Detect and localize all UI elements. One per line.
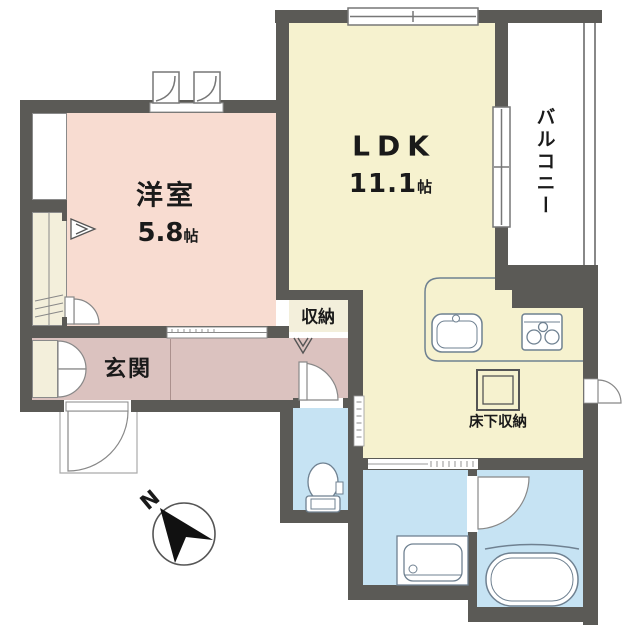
room-bathroom — [477, 470, 583, 607]
wall-balcony-lower — [495, 227, 508, 265]
wall-bath-divider — [468, 470, 477, 607]
wall-closet-stub — [32, 200, 67, 212]
label-ldk-size: 11.1帖 — [349, 169, 433, 199]
closet — [32, 212, 67, 326]
wall-washroom-bottom — [348, 585, 468, 600]
label-floor-storage: 床下収納 — [469, 411, 527, 432]
wall-ldk-west — [276, 10, 289, 296]
wall-western-top — [20, 100, 276, 113]
wall-western-south — [20, 326, 289, 338]
room-entrance-hall — [32, 338, 348, 400]
ldk-size-unit: 帖 — [417, 178, 433, 196]
label-entrance: 玄関 — [104, 351, 152, 383]
entrance-step-line — [170, 339, 171, 400]
label-ldk-name: LDK — [352, 130, 436, 163]
label-compass-north: N — [136, 485, 165, 515]
room-toilet — [293, 408, 348, 510]
wall-east — [583, 290, 598, 625]
wall-mid-vertical — [348, 290, 363, 600]
shoe-cabinet — [32, 340, 58, 398]
balcony-railing — [583, 23, 596, 265]
pipe-space — [32, 113, 67, 200]
wall-under-balcony — [495, 265, 598, 290]
wall-toilet-left — [280, 400, 293, 523]
north-arrow-compass-icon — [153, 503, 215, 565]
wall-left — [20, 100, 32, 412]
room-washroom — [363, 470, 468, 585]
floor-plan: 洋室 5.8帖 LDK 11.1帖 バルコニー 収納 玄関 床下収納 N — [0, 0, 640, 640]
room-ldk-lower — [363, 290, 583, 458]
wall-top — [275, 10, 602, 23]
western-room-size-unit: 帖 — [184, 227, 199, 245]
label-western-room-size: 5.8帖 — [137, 218, 198, 248]
wall-entrance-bottom — [20, 400, 293, 412]
label-balcony: バルコニー — [532, 107, 559, 217]
wall-balcony-upper — [495, 23, 508, 107]
label-storage: 収納 — [301, 303, 335, 328]
wall-bath-bottom — [468, 607, 598, 622]
porch-outline — [60, 412, 137, 473]
wall-ldk-south — [363, 458, 583, 470]
label-western-room-name: 洋室 — [136, 174, 196, 213]
